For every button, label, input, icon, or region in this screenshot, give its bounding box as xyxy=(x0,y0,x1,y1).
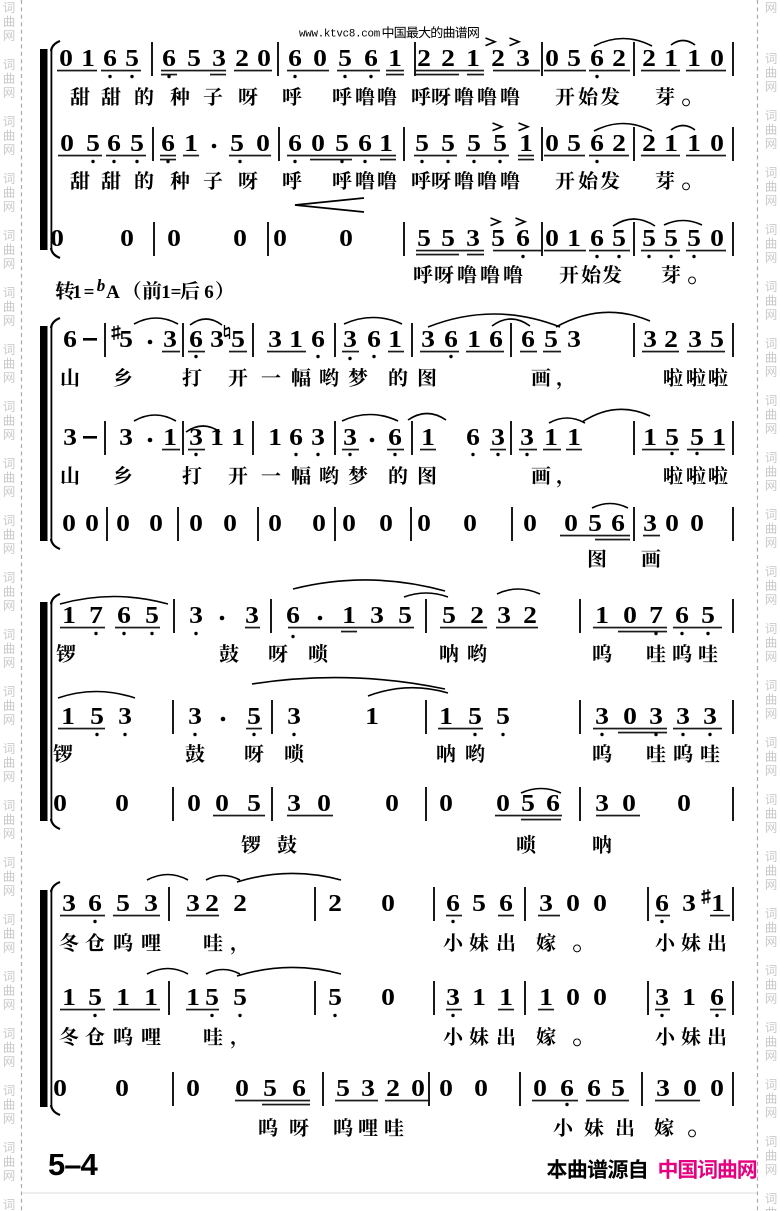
svg-text:5: 5 xyxy=(611,1075,625,1102)
svg-text:5: 5 xyxy=(338,45,352,72)
svg-text:6: 6 xyxy=(590,130,604,157)
svg-text:1: 1 xyxy=(687,130,701,157)
svg-text:3: 3 xyxy=(703,703,717,730)
svg-text:5: 5 xyxy=(398,602,412,629)
svg-text:7: 7 xyxy=(89,602,103,629)
svg-text:3: 3 xyxy=(370,602,384,629)
svg-text:6: 6 xyxy=(204,282,214,303)
svg-text:6: 6 xyxy=(655,890,669,917)
svg-text:1: 1 xyxy=(161,282,171,303)
svg-text:5: 5 xyxy=(496,703,510,730)
svg-text:1: 1 xyxy=(62,602,76,629)
svg-text:5: 5 xyxy=(493,130,507,157)
svg-text:3: 3 xyxy=(656,1075,670,1102)
svg-text:5: 5 xyxy=(441,225,455,252)
svg-text:1: 1 xyxy=(268,424,282,451)
svg-text:0: 0 xyxy=(710,130,724,157)
svg-text:5: 5 xyxy=(665,424,679,451)
svg-text:3: 3 xyxy=(643,326,657,353)
svg-text:1: 1 xyxy=(519,130,533,157)
svg-text:6: 6 xyxy=(590,45,604,72)
svg-text:3: 3 xyxy=(643,510,657,537)
svg-text:0: 0 xyxy=(235,1075,249,1102)
svg-text:0: 0 xyxy=(62,510,76,537)
svg-text:6: 6 xyxy=(364,45,378,72)
svg-text:3: 3 xyxy=(520,424,534,451)
svg-text:1: 1 xyxy=(595,602,609,629)
svg-text:1: 1 xyxy=(342,602,356,629)
svg-text:2: 2 xyxy=(205,890,219,917)
svg-text:6: 6 xyxy=(288,45,302,72)
svg-text:0: 0 xyxy=(339,225,353,252)
svg-text:3: 3 xyxy=(343,326,357,353)
svg-text:3: 3 xyxy=(446,984,460,1011)
svg-text:5: 5 xyxy=(544,326,558,353)
svg-text:5: 5 xyxy=(119,326,133,353)
svg-text:3: 3 xyxy=(311,424,325,451)
svg-text:6: 6 xyxy=(710,984,724,1011)
svg-text:1: 1 xyxy=(184,130,198,157)
svg-text:1: 1 xyxy=(186,984,200,1011)
svg-text:7: 7 xyxy=(649,602,663,629)
svg-text:0: 0 xyxy=(523,510,537,537)
svg-text:6: 6 xyxy=(107,130,121,157)
svg-text:2: 2 xyxy=(328,890,342,917)
svg-text:1: 1 xyxy=(379,130,393,157)
svg-text:0: 0 xyxy=(566,890,580,917)
svg-text:3: 3 xyxy=(421,326,435,353)
svg-text:2: 2 xyxy=(235,45,249,72)
svg-text:3: 3 xyxy=(186,890,200,917)
svg-text:0: 0 xyxy=(85,510,99,537)
svg-text:1: 1 xyxy=(81,45,95,72)
svg-text:1: 1 xyxy=(289,326,303,353)
svg-text:5: 5 xyxy=(642,225,656,252)
svg-text:3: 3 xyxy=(682,890,696,917)
svg-text:0: 0 xyxy=(623,703,637,730)
svg-text:5: 5 xyxy=(468,703,482,730)
svg-text:6: 6 xyxy=(675,602,689,629)
svg-text:6: 6 xyxy=(367,326,381,353)
svg-text:0: 0 xyxy=(313,45,327,72)
svg-text:0: 0 xyxy=(690,510,704,537)
svg-text:1: 1 xyxy=(643,424,657,451)
svg-text:0: 0 xyxy=(417,510,431,537)
svg-text:2: 2 xyxy=(642,45,656,72)
svg-text:2: 2 xyxy=(441,45,455,72)
svg-text:5: 5 xyxy=(710,326,724,353)
svg-text:6: 6 xyxy=(560,1075,574,1102)
svg-text:5: 5 xyxy=(205,984,219,1011)
svg-text:6: 6 xyxy=(444,326,458,353)
svg-text:0: 0 xyxy=(381,890,395,917)
svg-text:0: 0 xyxy=(474,1075,488,1102)
svg-text:0: 0 xyxy=(379,510,393,537)
svg-text:1: 1 xyxy=(664,45,678,72)
svg-text:0: 0 xyxy=(53,790,67,817)
svg-text:0: 0 xyxy=(683,1075,697,1102)
svg-text:6: 6 xyxy=(521,326,535,353)
svg-text:6: 6 xyxy=(516,225,530,252)
svg-text:0: 0 xyxy=(186,1075,200,1102)
svg-text:0: 0 xyxy=(187,790,201,817)
svg-text:6: 6 xyxy=(446,890,460,917)
svg-text:1: 1 xyxy=(116,984,130,1011)
svg-text:6: 6 xyxy=(162,45,176,72)
svg-text:1: 1 xyxy=(499,984,513,1011)
svg-text:0: 0 xyxy=(533,1075,547,1102)
svg-text:5: 5 xyxy=(441,130,455,157)
svg-text:0: 0 xyxy=(381,984,395,1011)
svg-text:6: 6 xyxy=(388,424,402,451)
svg-text:5: 5 xyxy=(328,984,342,1011)
svg-text:0: 0 xyxy=(317,790,331,817)
svg-text:5: 5 xyxy=(233,984,247,1011)
svg-text:5: 5 xyxy=(417,225,431,252)
svg-text:0: 0 xyxy=(566,984,580,1011)
svg-text:6: 6 xyxy=(63,326,77,353)
svg-text:0: 0 xyxy=(215,790,229,817)
svg-text:5: 5 xyxy=(701,602,715,629)
svg-text:0: 0 xyxy=(439,1075,453,1102)
svg-text:2: 2 xyxy=(386,1075,400,1102)
svg-text:5: 5 xyxy=(588,510,602,537)
svg-text:0: 0 xyxy=(622,790,636,817)
svg-text:0: 0 xyxy=(439,790,453,817)
svg-text:6: 6 xyxy=(489,326,503,353)
svg-text:1: 1 xyxy=(687,45,701,72)
svg-text:6: 6 xyxy=(288,130,302,157)
svg-text:3: 3 xyxy=(63,424,77,451)
svg-text:1: 1 xyxy=(61,703,75,730)
svg-text:0: 0 xyxy=(311,130,325,157)
svg-text:3: 3 xyxy=(188,703,202,730)
svg-text:3: 3 xyxy=(245,602,259,629)
svg-text:1: 1 xyxy=(539,984,553,1011)
svg-text:0: 0 xyxy=(50,225,64,252)
svg-text:5: 5 xyxy=(86,130,100,157)
svg-text:1: 1 xyxy=(421,424,435,451)
svg-text:1: 1 xyxy=(439,703,453,730)
svg-text:1: 1 xyxy=(682,984,696,1011)
svg-text:0: 0 xyxy=(189,510,203,537)
svg-text:0: 0 xyxy=(545,225,559,252)
svg-text:5: 5 xyxy=(247,790,261,817)
svg-text:3: 3 xyxy=(144,890,158,917)
svg-text:6: 6 xyxy=(611,510,625,537)
svg-text:1: 1 xyxy=(712,424,726,451)
svg-text:0: 0 xyxy=(116,510,130,537)
svg-text:0: 0 xyxy=(385,790,399,817)
svg-text:2: 2 xyxy=(491,45,505,72)
svg-text:0: 0 xyxy=(545,45,559,72)
svg-text:0: 0 xyxy=(342,510,356,537)
svg-text:5: 5 xyxy=(116,890,130,917)
svg-text:6: 6 xyxy=(466,424,480,451)
svg-text:0: 0 xyxy=(710,1075,724,1102)
svg-text:1: 1 xyxy=(231,424,245,451)
svg-text:3: 3 xyxy=(655,984,669,1011)
svg-text:=: = xyxy=(84,282,95,303)
svg-text:0: 0 xyxy=(593,890,607,917)
svg-text:6: 6 xyxy=(499,890,513,917)
svg-text:5: 5 xyxy=(125,45,139,72)
svg-text:0: 0 xyxy=(115,790,129,817)
svg-text:1: 1 xyxy=(472,984,486,1011)
svg-text:6: 6 xyxy=(311,326,325,353)
svg-text:0: 0 xyxy=(59,45,73,72)
svg-text:3: 3 xyxy=(210,326,224,353)
svg-text:5: 5 xyxy=(130,130,144,157)
svg-text:1: 1 xyxy=(365,703,379,730)
svg-text:1: 1 xyxy=(664,130,678,157)
svg-text:3: 3 xyxy=(189,602,203,629)
svg-text:1: 1 xyxy=(544,424,558,451)
svg-text:5: 5 xyxy=(230,130,244,157)
svg-text:1: 1 xyxy=(711,890,725,917)
svg-text:1: 1 xyxy=(388,326,402,353)
svg-text:5: 5 xyxy=(664,225,678,252)
svg-text:3: 3 xyxy=(497,602,511,629)
svg-text:0: 0 xyxy=(256,130,270,157)
svg-text:0: 0 xyxy=(593,984,607,1011)
svg-text:2: 2 xyxy=(612,130,626,157)
svg-text:3: 3 xyxy=(567,326,581,353)
svg-text:1: 1 xyxy=(466,45,480,72)
svg-text:0: 0 xyxy=(167,225,181,252)
svg-text:5: 5 xyxy=(521,790,535,817)
svg-text:2: 2 xyxy=(233,890,247,917)
svg-text:0: 0 xyxy=(710,45,724,72)
svg-text:3: 3 xyxy=(62,890,76,917)
svg-text:0: 0 xyxy=(545,130,559,157)
svg-text:6: 6 xyxy=(117,602,131,629)
svg-text:5: 5 xyxy=(472,890,486,917)
svg-text:6: 6 xyxy=(161,130,175,157)
svg-text:1: 1 xyxy=(388,45,402,72)
svg-text:1: 1 xyxy=(163,424,177,451)
svg-text:A: A xyxy=(106,282,120,303)
svg-text:5: 5 xyxy=(336,1075,350,1102)
svg-text:0: 0 xyxy=(677,790,691,817)
svg-text:0: 0 xyxy=(233,225,247,252)
svg-text:6: 6 xyxy=(103,45,117,72)
svg-text:5: 5 xyxy=(415,130,429,157)
svg-text:0: 0 xyxy=(53,1075,67,1102)
svg-text:0: 0 xyxy=(710,225,724,252)
svg-text:5: 5 xyxy=(467,130,481,157)
svg-text:5: 5 xyxy=(335,130,349,157)
svg-text:1: 1 xyxy=(144,984,158,1011)
svg-text:6: 6 xyxy=(286,602,300,629)
svg-text:3: 3 xyxy=(688,326,702,353)
svg-text:3: 3 xyxy=(466,225,480,252)
svg-text:5: 5 xyxy=(88,984,102,1011)
svg-text:3: 3 xyxy=(287,790,301,817)
svg-text:5: 5 xyxy=(263,1075,277,1102)
svg-text:6: 6 xyxy=(189,326,203,353)
svg-text:6: 6 xyxy=(587,1075,601,1102)
svg-text:1: 1 xyxy=(62,984,76,1011)
svg-text:=: = xyxy=(171,282,182,303)
svg-text:1: 1 xyxy=(467,326,481,353)
svg-text:0: 0 xyxy=(223,510,237,537)
svg-text:3: 3 xyxy=(491,424,505,451)
svg-text:3: 3 xyxy=(649,703,663,730)
svg-text:6: 6 xyxy=(292,1075,306,1102)
svg-text:3: 3 xyxy=(343,424,357,451)
svg-text:3: 3 xyxy=(516,45,530,72)
svg-text:0: 0 xyxy=(273,225,287,252)
svg-text:5–4: 5–4 xyxy=(48,1147,98,1182)
svg-text:3: 3 xyxy=(268,326,282,353)
svg-text:5: 5 xyxy=(690,424,704,451)
svg-text:3: 3 xyxy=(539,890,553,917)
svg-text:3: 3 xyxy=(595,790,609,817)
svg-text:3: 3 xyxy=(676,703,690,730)
svg-text:5: 5 xyxy=(491,225,505,252)
svg-text:2: 2 xyxy=(664,326,678,353)
svg-text:0: 0 xyxy=(665,510,679,537)
svg-text:5: 5 xyxy=(567,130,581,157)
svg-text:0: 0 xyxy=(564,510,578,537)
svg-text:0: 0 xyxy=(463,510,477,537)
svg-text:0: 0 xyxy=(60,130,74,157)
svg-text:6: 6 xyxy=(546,790,560,817)
svg-text:0: 0 xyxy=(623,602,637,629)
svg-text:3: 3 xyxy=(118,703,132,730)
svg-text:5: 5 xyxy=(145,602,159,629)
svg-text:2: 2 xyxy=(642,130,656,157)
svg-text:www.ktvc8.com: www.ktvc8.com xyxy=(299,29,380,41)
svg-text:0: 0 xyxy=(120,225,134,252)
svg-text:0: 0 xyxy=(268,510,282,537)
svg-text:0: 0 xyxy=(257,45,271,72)
svg-text:3: 3 xyxy=(163,326,177,353)
svg-text:5: 5 xyxy=(90,703,104,730)
svg-text:b: b xyxy=(97,276,106,295)
svg-text:5: 5 xyxy=(612,225,626,252)
svg-text:5: 5 xyxy=(231,326,245,353)
svg-text:0: 0 xyxy=(149,510,163,537)
svg-text:2: 2 xyxy=(470,602,484,629)
svg-text:3: 3 xyxy=(119,424,133,451)
svg-text:0: 0 xyxy=(411,1075,425,1102)
svg-text:3: 3 xyxy=(361,1075,375,1102)
svg-text:3: 3 xyxy=(287,703,301,730)
svg-text:5: 5 xyxy=(247,703,261,730)
svg-text:6: 6 xyxy=(289,424,303,451)
svg-text:1: 1 xyxy=(567,225,581,252)
svg-text:5: 5 xyxy=(187,45,201,72)
svg-text:0: 0 xyxy=(115,1075,129,1102)
svg-text:1: 1 xyxy=(567,424,581,451)
svg-text:3: 3 xyxy=(212,45,226,72)
svg-text:2: 2 xyxy=(417,45,431,72)
svg-text:5: 5 xyxy=(442,602,456,629)
svg-text:5: 5 xyxy=(687,225,701,252)
svg-text:1: 1 xyxy=(72,282,82,303)
svg-text:2: 2 xyxy=(612,45,626,72)
svg-text:0: 0 xyxy=(312,510,326,537)
svg-text:6: 6 xyxy=(358,130,372,157)
svg-text:2: 2 xyxy=(523,602,537,629)
svg-text:5: 5 xyxy=(567,45,581,72)
svg-text:6: 6 xyxy=(590,225,604,252)
svg-text:0: 0 xyxy=(496,790,510,817)
svg-text:3: 3 xyxy=(595,703,609,730)
svg-text:6: 6 xyxy=(88,890,102,917)
